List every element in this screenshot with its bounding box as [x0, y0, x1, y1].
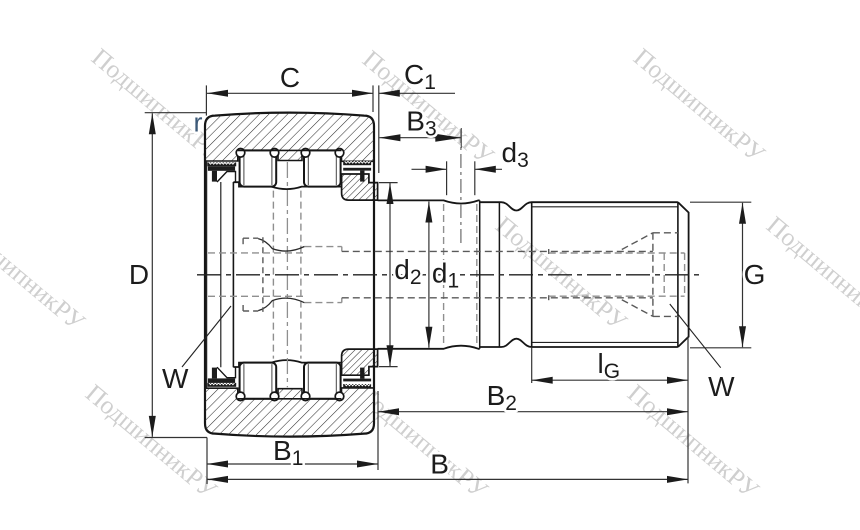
svg-text:W: W: [162, 363, 189, 394]
svg-text:W: W: [708, 371, 735, 402]
svg-text:D: D: [129, 259, 149, 290]
svg-text:G: G: [744, 259, 766, 290]
svg-text:B: B: [430, 448, 449, 479]
svg-text:C: C: [280, 62, 300, 93]
svg-text:r: r: [194, 108, 203, 138]
